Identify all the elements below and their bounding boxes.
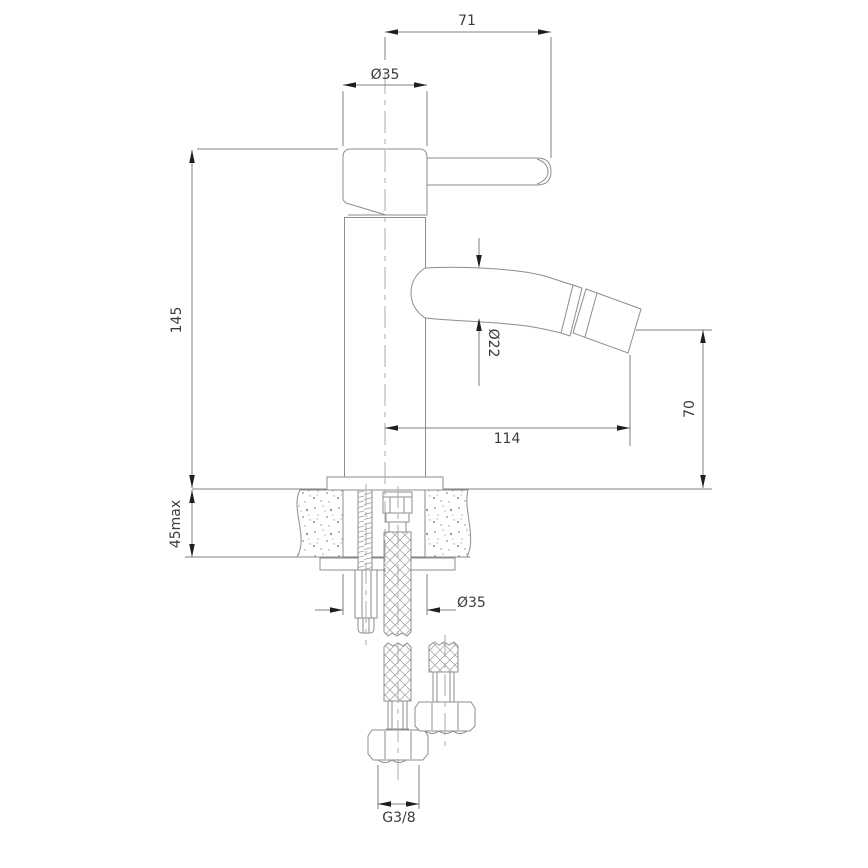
aerator-cap-line [585,293,597,337]
dimension-mount-thickness: 45max [168,490,195,557]
lever-end-arc [537,159,548,184]
faucet-dimension-drawing: 71 Ø35 145 45max Ø22 70 114 [0,0,868,868]
dim-label-70: 70 [682,400,698,418]
dimension-body-height: 145 [169,149,338,488]
dimension-spout-reach: 114 [385,355,630,447]
aerator [573,289,641,353]
countertop-section [185,477,712,570]
hose-ferrule-right [433,672,454,702]
braided-hose-right [429,642,458,672]
spout-joint-rings [561,285,582,336]
counter-slab-left [297,490,343,557]
dim-label-top-d35: Ø35 [371,67,400,83]
counter-slab-right [425,490,471,557]
lever-handle [427,158,551,185]
dim-label-114: 114 [494,431,521,447]
dimension-spout-diameter: Ø22 [476,238,501,386]
dim-label-g38: G3/8 [382,810,415,826]
dim-label-d22: Ø22 [485,329,501,358]
dimension-top-diameter: Ø35 [343,67,427,146]
spout-back-cap [411,268,425,318]
dimension-spout-height: 70 [636,330,712,488]
fixing-hardware [355,490,412,636]
spout-top-edge [425,267,573,285]
dim-label-base-d35: Ø35 [457,595,486,611]
supply-hoses [368,642,475,763]
threaded-stud [358,490,372,570]
dim-label-145: 145 [169,307,185,334]
dim-label-45max: 45max [168,500,184,548]
dim-label-71: 71 [458,13,476,29]
technical-drawing-page: 71 Ø35 145 45max Ø22 70 114 [0,0,868,868]
